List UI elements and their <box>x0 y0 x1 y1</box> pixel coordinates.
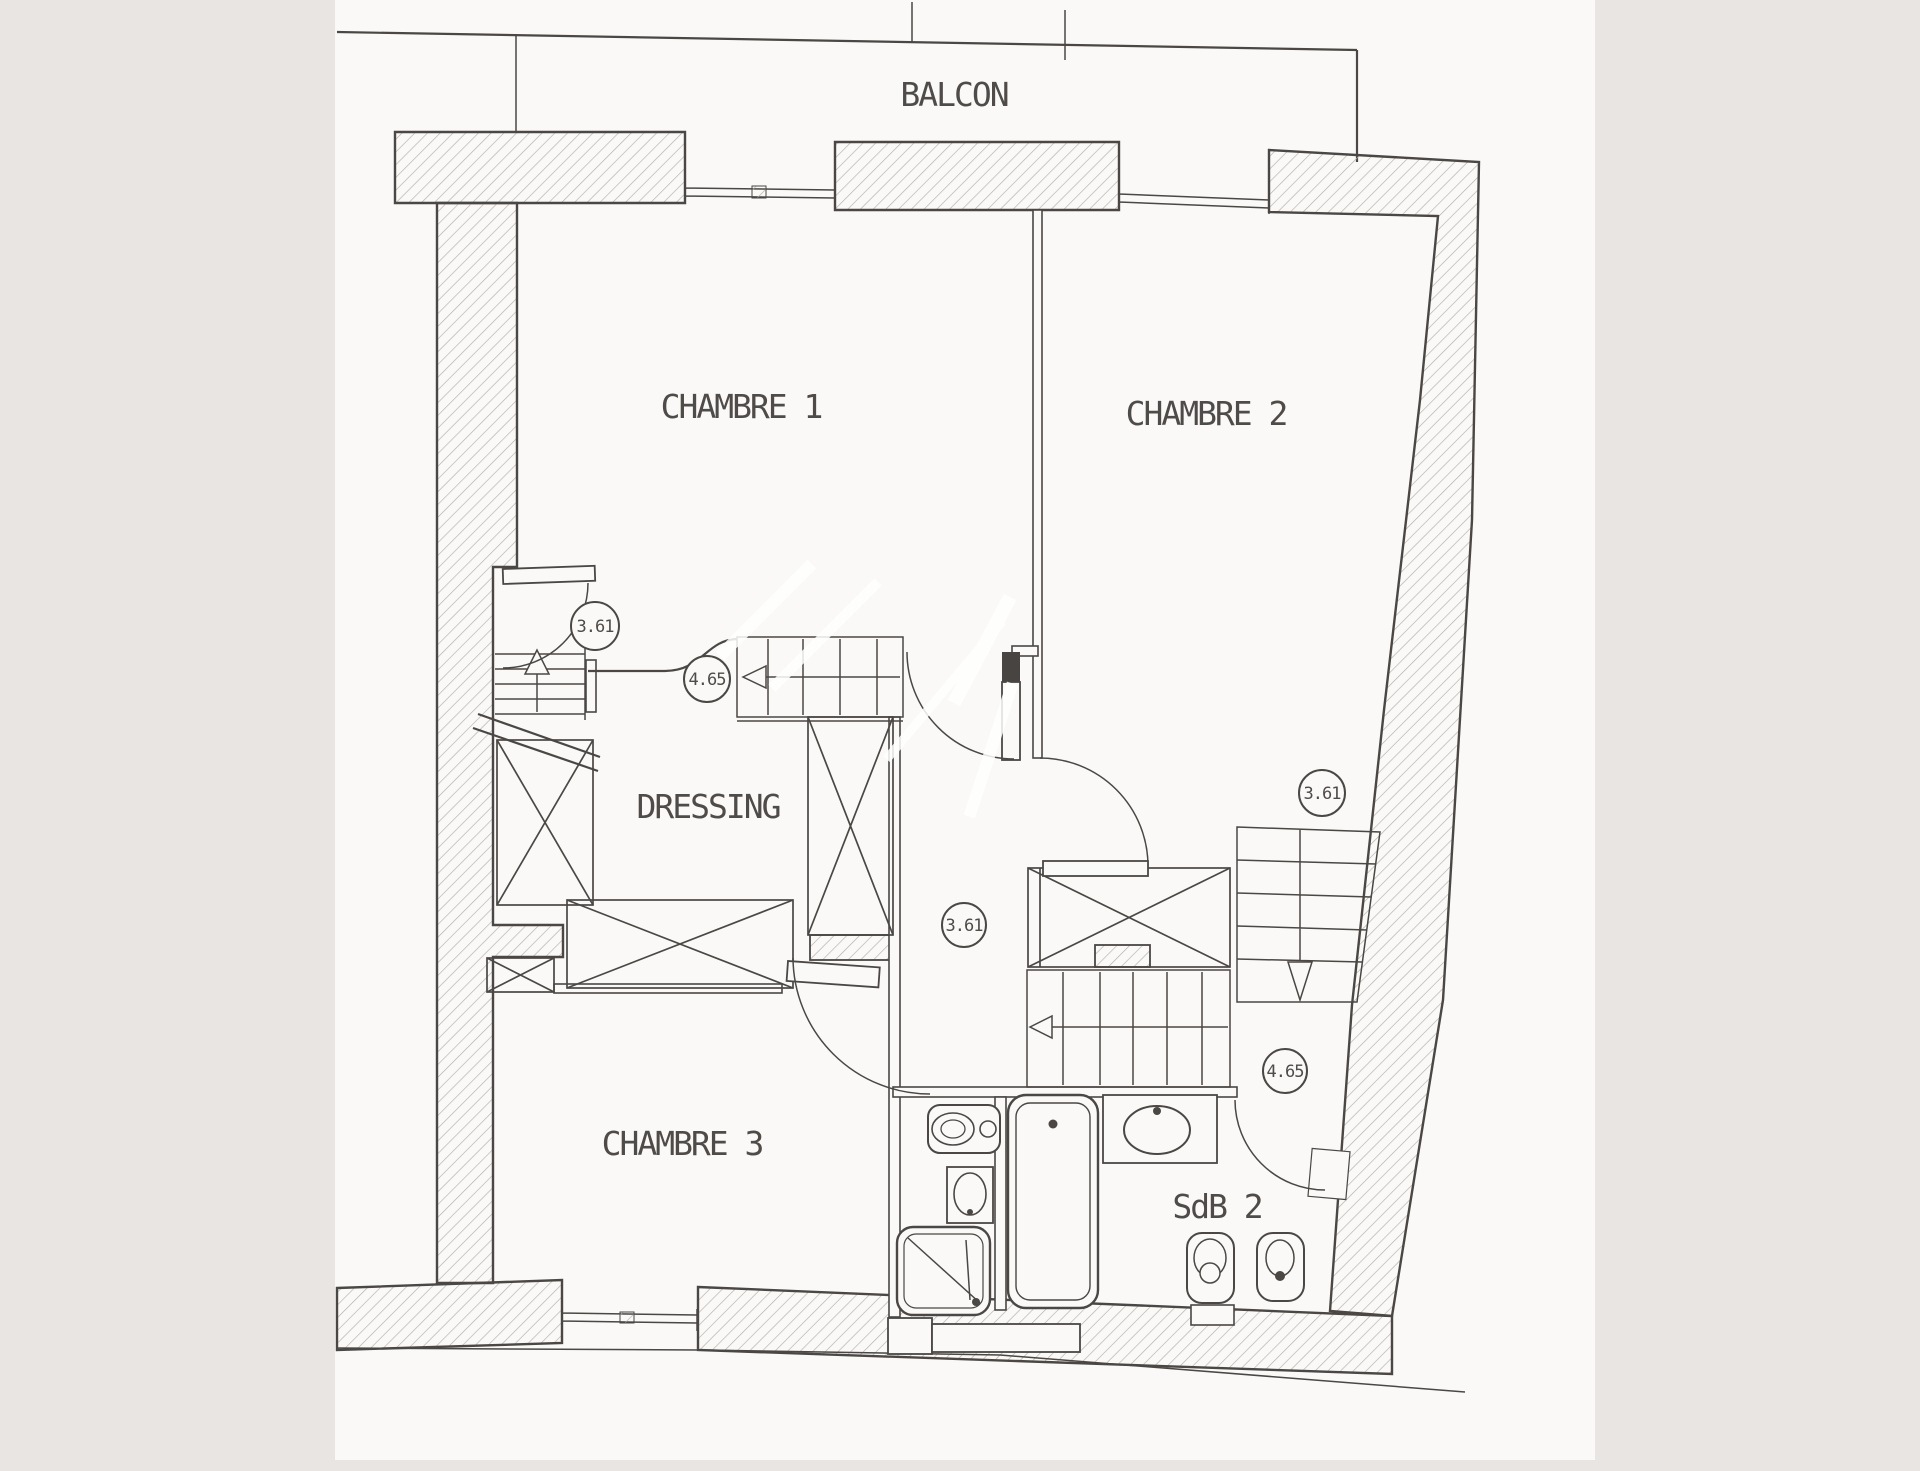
label-dressing: DRESSING <box>637 787 780 826</box>
partition-door-stub <box>586 660 596 712</box>
toilet-sdb2 <box>1187 1233 1234 1325</box>
partition-dressing-hall <box>889 717 900 1317</box>
dim-upper-stairs: 4.65 <box>684 656 730 702</box>
label-chambre-1: CHAMBRE 1 <box>661 387 822 426</box>
label-chambre-3: CHAMBRE 3 <box>602 1124 763 1163</box>
wall-stub-hall <box>810 935 890 960</box>
balcony-label: BALCON <box>900 75 1007 114</box>
bidet-sdb2 <box>1257 1233 1304 1301</box>
wall-top-left <box>395 132 685 203</box>
dim-central-hall: 3.61 <box>942 903 986 947</box>
wall-stub-closet <box>1095 945 1150 967</box>
svg-text:3.61: 3.61 <box>946 916 984 936</box>
floor-plan-drawing: BALCON <box>0 0 1920 1471</box>
left-margin <box>0 0 335 1471</box>
label-sdb-2: SdB 2 <box>1172 1187 1261 1226</box>
svg-text:3.61: 3.61 <box>1304 784 1342 804</box>
toilet-wc-room <box>928 1105 1000 1153</box>
right-margin <box>1595 0 1920 1471</box>
wall-top-middle <box>835 142 1119 210</box>
partition-ch1-ch2 <box>1033 210 1042 758</box>
svg-text:4.65: 4.65 <box>1267 1062 1304 1082</box>
dim-upper-landing: 3.61 <box>571 602 619 650</box>
sink-sdb2 <box>1103 1095 1217 1163</box>
bath-step-left <box>888 1318 932 1354</box>
sink-wc-room <box>947 1167 993 1223</box>
bath-step-right <box>932 1324 1080 1352</box>
bottom-margin <box>0 1460 1920 1471</box>
bathtub <box>1008 1095 1098 1308</box>
wall-bottom-left <box>337 1280 562 1350</box>
dim-lower-stairs: 4.65 <box>1263 1049 1307 1093</box>
svg-text:4.65: 4.65 <box>689 670 726 690</box>
floor-plan-page: BALCON <box>0 0 1920 1471</box>
door-hinge-block <box>1002 652 1020 682</box>
shower-tray <box>897 1227 990 1315</box>
dim-chambre2: 3.61 <box>1299 770 1345 816</box>
label-chambre-2: CHAMBRE 2 <box>1126 394 1287 433</box>
svg-text:3.61: 3.61 <box>577 617 615 637</box>
